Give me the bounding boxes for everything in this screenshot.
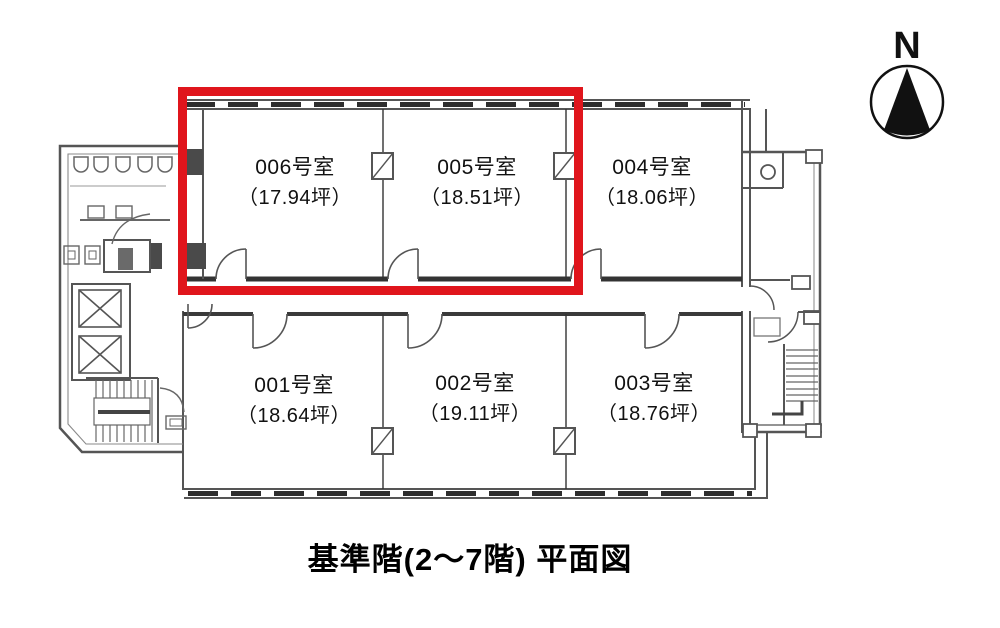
right-wing [742,109,822,437]
column-icon [372,428,575,454]
room-label-004: 004号室 （18.06坪） [595,152,709,214]
stairs-icon-left [86,378,158,443]
page-title: 基準階(2～7階) 平面図 [308,534,633,579]
room-label-001: 001号室 （18.64坪） [237,370,351,432]
room-number: 003号室 [597,368,711,399]
door-arc-icon [750,286,774,310]
room-area: （18.51坪） [420,183,534,214]
column-icon [743,150,822,437]
left-wing [60,146,186,452]
room-area: （18.76坪） [597,399,711,430]
toilet-circle-icon [742,152,783,188]
room-area: （18.64坪） [237,401,351,432]
room-number: 001号室 [237,370,351,401]
room-label-006: 006号室 （17.94坪） [238,152,352,214]
urinal-icons [70,157,172,186]
room-area: （18.06坪） [595,183,709,214]
room-area: （19.11坪） [419,399,532,430]
compass-north-label: N [893,26,920,66]
room-label-005: 005号室 （18.51坪） [420,152,534,214]
toilet-icons [64,246,100,264]
floor-plan-page: 006号室 （17.94坪） 005号室 （18.51坪） 004号室 （18.… [0,0,1000,628]
north-compass [871,66,943,138]
door-arc-icon [768,312,798,342]
room-area: （17.94坪） [238,183,352,214]
stairs-icon-right [772,344,818,425]
room-number: 002号室 [419,368,532,399]
north-arrow-icon [884,68,930,136]
door-arc-icon [188,304,679,348]
duct-shaft-icon [104,240,150,272]
elevator-icon [72,284,130,380]
room-number: 006号室 [238,152,352,183]
room-label-003: 003号室 （18.76坪） [597,368,711,430]
room-number: 004号室 [595,152,709,183]
room-number: 005号室 [420,152,534,183]
sink-icons [80,206,170,220]
room-label-002: 002号室 （19.11坪） [419,368,532,430]
